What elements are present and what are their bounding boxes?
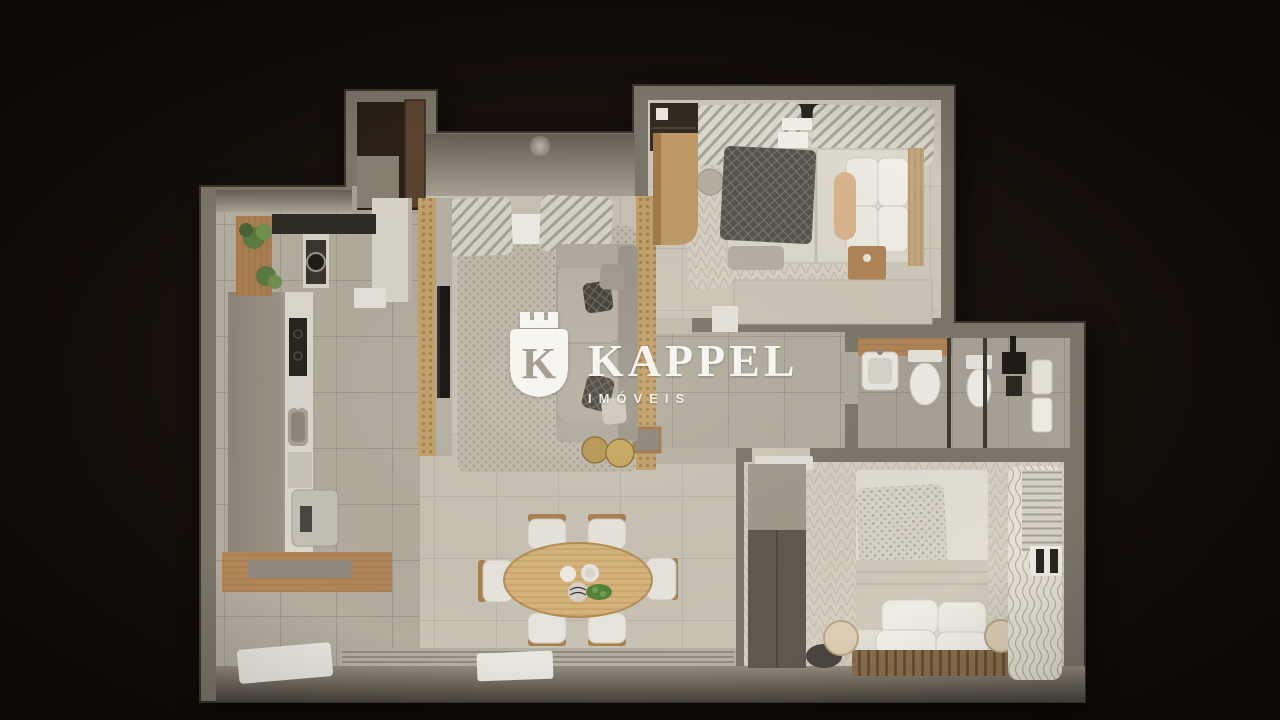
apartment-plan-canvas [0,0,1280,720]
floor-plan-render: K KAPPEL IMÓVEIS [0,0,1280,720]
lighting-vignette [0,0,1280,720]
